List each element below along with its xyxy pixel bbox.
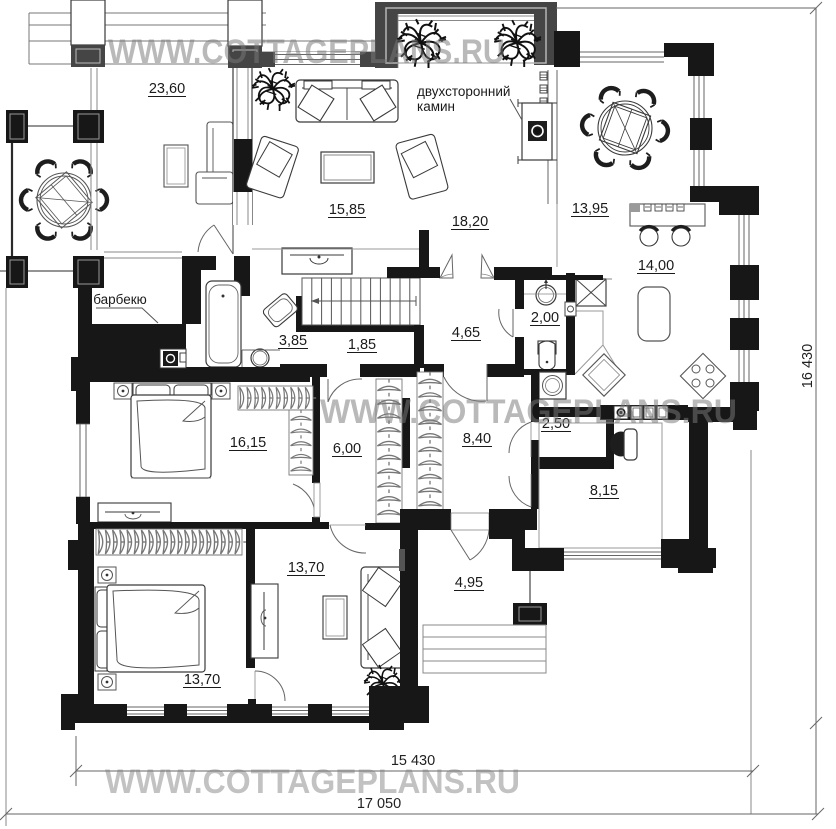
svg-text:13,70: 13,70 bbox=[184, 672, 220, 688]
svg-text:4,65: 4,65 bbox=[452, 325, 480, 341]
svg-text:13,95: 13,95 bbox=[572, 201, 608, 217]
svg-text:13,70: 13,70 bbox=[288, 560, 324, 576]
svg-text:14,00: 14,00 bbox=[638, 258, 674, 274]
svg-text:WWW.COTTAGEPLANS.RU: WWW.COTTAGEPLANS.RU bbox=[105, 763, 520, 801]
svg-text:18,20: 18,20 bbox=[452, 214, 488, 230]
svg-text:WWW.COTTAGEPLANS.RU: WWW.COTTAGEPLANS.RU bbox=[108, 33, 505, 71]
svg-text:барбекю: барбекю bbox=[93, 292, 147, 307]
svg-text:1,85: 1,85 bbox=[348, 337, 376, 353]
svg-text:8,40: 8,40 bbox=[463, 431, 491, 447]
svg-text:2,00: 2,00 bbox=[531, 310, 559, 326]
svg-text:двухсторонний: двухсторонний bbox=[417, 84, 510, 99]
svg-text:WWW.COTTAGEPLANS.RU: WWW.COTTAGEPLANS.RU bbox=[320, 393, 737, 431]
svg-text:16 430: 16 430 bbox=[800, 344, 816, 388]
svg-text:23,60: 23,60 bbox=[149, 81, 185, 97]
svg-text:камин: камин bbox=[417, 99, 455, 114]
svg-text:15,85: 15,85 bbox=[329, 202, 365, 218]
svg-text:4,95: 4,95 bbox=[455, 575, 483, 591]
svg-text:6,00: 6,00 bbox=[333, 441, 361, 457]
svg-text:16,15: 16,15 bbox=[230, 435, 266, 451]
svg-text:3,85: 3,85 bbox=[279, 333, 307, 349]
svg-text:8,15: 8,15 bbox=[590, 483, 618, 499]
